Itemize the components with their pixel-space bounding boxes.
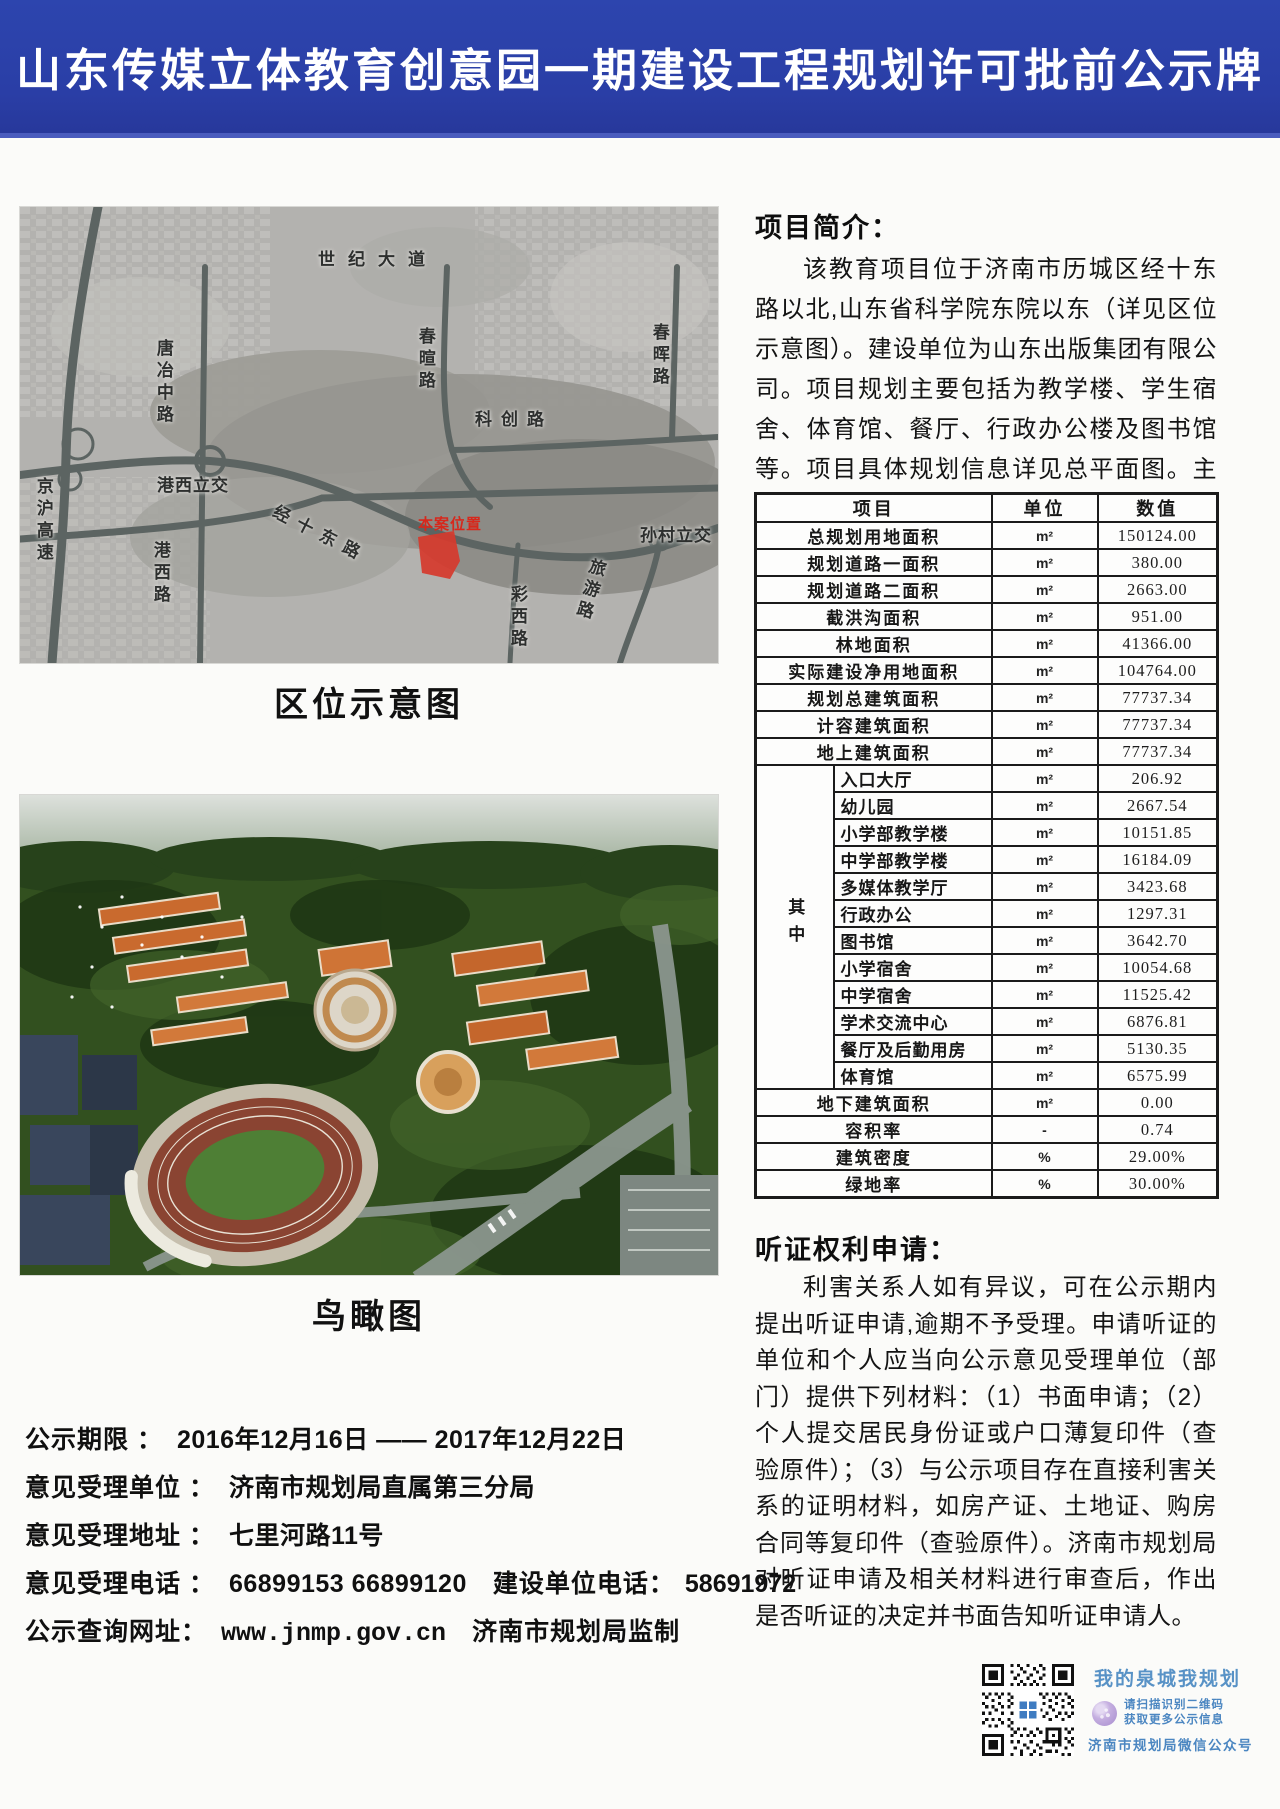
intro-heading: 项目简介： [755,206,900,245]
table-row: 容积率-0.74 [756,1116,1218,1143]
header-value: 数值 [1098,494,1218,523]
notice-label: 意见受理单位 ： [25,1474,215,1502]
header-unit: 单位 [992,494,1098,523]
notice-row-phone: 意见受理电话 ：66899153 66899120建设单位电话：58691972 [25,1564,740,1600]
notice-row-unit: 意见受理单位 ：济南市规划局直属第三分局 [25,1468,740,1504]
road-label-suncun-lijiao: 孙村立交 [640,527,712,545]
notice-row-period: 公示期限 ：2016年12月16日 —— 2017年12月22日 [25,1420,740,1456]
notice-board: 山东传媒立体教育创意园一期建设工程规划许可批前公示牌 [0,0,1280,1809]
aerial-caption: 鸟瞰图 [20,1289,718,1338]
group-label-cell: 其中 [756,765,834,1089]
notice-row-address: 意见受理地址 ：七里河路11号 [25,1516,740,1552]
notice-value: 66899153 66899120 [229,1570,467,1598]
location-map: 世纪大道 唐冶中路 春暄路 春晖路 科创路 港西立交 经十东路 孙村立交 京沪高… [20,207,718,726]
aerial-render-image [20,795,718,1275]
table-row: 规划总建筑面积m²77737.34 [756,684,1218,711]
notice-producer: 济南市规划局监制 [472,1618,680,1646]
purple-ball-icon [1092,1701,1117,1726]
road-label-tangye-middle: 唐冶中路 [154,339,172,427]
aerial-view: 鸟瞰图 [20,795,718,1338]
road-label-kechuang: 科创路 [475,411,553,429]
notice-label: 意见受理地址 ： [25,1522,215,1550]
table-row: 其中 入口大厅m²206.92 [756,765,1218,792]
table-row: 绿地率%30.00% [756,1170,1218,1198]
road-label-gangxi: 港西路 [151,541,169,607]
qr-section: 我的泉城我规划 请扫描识别二维码 获取更多公示信息 济南市规划局微信公众号 [982,1658,1222,1766]
notice-label: 公示查询网址： [25,1618,207,1646]
notice-value: 2016年12月16日 —— 2017年12月22日 [177,1426,626,1454]
road-label-caixi: 彩西路 [508,585,526,651]
page-title: 山东传媒立体教育创意园一期建设工程规划许可批前公示牌 [16,34,1264,99]
satellite-map-image: 世纪大道 唐冶中路 春暄路 春晖路 科创路 港西立交 经十东路 孙村立交 京沪高… [20,207,718,663]
notice-label: 意见受理电话 ： [25,1570,215,1598]
road-label-jinghu-expwy: 京沪高速 [34,477,52,565]
road-label-chunhui: 春晖路 [650,323,668,389]
location-map-caption: 区位示意图 [20,677,718,726]
notice-value: 七里河路11号 [229,1522,384,1550]
header-item: 项目 [756,494,992,523]
notice-row-website: 公示查询网址：www.jnmp.gov.cn济南市规划局监制 [25,1612,740,1648]
title-banner: 山东传媒立体教育创意园一期建设工程规划许可批前公示牌 [0,0,1280,138]
qr-code-icon [982,1664,1074,1756]
table-row: 地上建筑面积m²77737.34 [756,738,1218,765]
table-row: 林地面积m²41366.00 [756,630,1218,657]
hearing-heading: 听证权利申请： [755,1228,958,1267]
notice-label-2: 建设单位电话： [493,1570,675,1598]
table-row: 实际建设净用地面积m²104764.00 [756,657,1218,684]
table-row: 计容建筑面积m²77737.34 [756,711,1218,738]
table-row: 地下建筑面积m²0.00 [756,1089,1218,1116]
table-row: 规划道路二面积m²2663.00 [756,576,1218,603]
table-row: 截洪沟面积m²951.00 [756,603,1218,630]
table-row: 总规划用地面积m²150124.00 [756,522,1218,549]
qr-tip-line-1: 请扫描识别二维码 [1124,1698,1224,1713]
road-label-chunxuan: 春暄路 [416,327,434,393]
wechat-account-label: 济南市规划局微信公众号 [1088,1734,1253,1754]
qr-tip-row: 请扫描识别二维码 获取更多公示信息 [1092,1698,1224,1728]
notice-value: 济南市规划局直属第三分局 [229,1474,535,1502]
map-graphic [20,207,718,663]
site-parcel [418,531,460,579]
site-location-label: 本案位置 [418,517,482,533]
qr-tips: 请扫描识别二维码 获取更多公示信息 [1124,1698,1224,1728]
notice-info: 公示期限 ：2016年12月16日 —— 2017年12月22日 意见受理单位 … [25,1420,740,1648]
group-label: 其中 [782,898,807,952]
hearing-text: 利害关系人如有异议，可在公示期内提出听证申请,逾期不予受理。申请听证的单位和个人… [755,1270,1217,1635]
qr-tip-line-2: 获取更多公示信息 [1124,1713,1224,1728]
intro-text: 该教育项目位于济南市历城区经十东路以北,山东省科学院东院以东（详见区位示意图）。… [755,250,1217,530]
table-row: 规划道路一面积m²380.00 [756,549,1218,576]
aerial-graphic [20,795,718,1275]
indicator-table: 项目 单位 数值 总规划用地面积m²150124.00 规划道路一面积m²380… [754,492,1219,1199]
qr-slogan: 我的泉城我规划 [1094,1664,1241,1691]
notice-label: 公示期限 ： [25,1426,163,1454]
table-row: 建筑密度%29.00% [756,1143,1218,1170]
road-label-shiji-avenue: 世纪大道 [318,251,438,269]
table-header-row: 项目 单位 数值 [756,494,1218,523]
road-label-gangxi-lijiao: 港西立交 [157,477,229,495]
notice-url: www.jnmp.gov.cn [221,1619,446,1648]
